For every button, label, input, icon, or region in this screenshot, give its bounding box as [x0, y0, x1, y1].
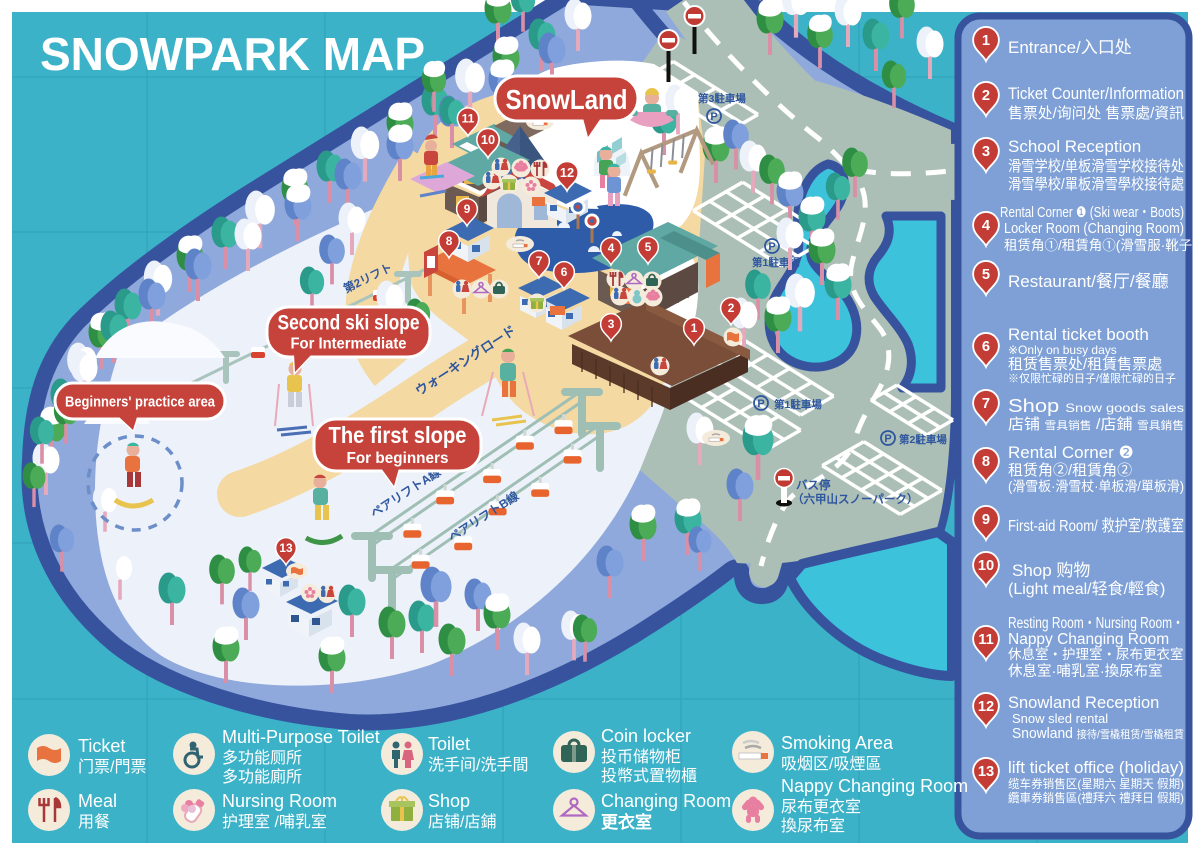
svg-text:Shop 购物: Shop 购物 — [1012, 561, 1090, 580]
svg-text:投幣式置物櫃: 投幣式置物櫃 — [601, 767, 697, 785]
svg-text:更衣室: 更衣室 — [601, 812, 652, 832]
svg-text:第3駐車場: 第3駐車場 — [698, 92, 746, 105]
svg-text:Entrance/入口处: Entrance/入口处 — [1008, 38, 1132, 57]
svg-text:換尿布室: 換尿布室 — [781, 817, 845, 835]
svg-text:3: 3 — [982, 144, 990, 160]
svg-text:Second ski slope: Second ski slope — [278, 312, 420, 335]
svg-text:第1駐車場: 第1駐車場 — [752, 256, 800, 269]
svg-text:9: 9 — [464, 202, 471, 216]
svg-text:第2駐車場: 第2駐車場 — [899, 433, 947, 446]
svg-text:SNOWPARK MAP: SNOWPARK MAP — [40, 28, 425, 80]
svg-text:尿布更衣室: 尿布更衣室 — [781, 798, 861, 816]
svg-text:纜車券銷售區(禮拜六 禮拜日 假期): 纜車券銷售區(禮拜六 禮拜日 假期) — [1008, 790, 1184, 805]
svg-text:店铺/店鋪: 店铺/店鋪 — [428, 813, 496, 831]
svg-text:1: 1 — [982, 33, 990, 49]
svg-text:Shop: Shop — [428, 791, 470, 811]
svg-text:P: P — [710, 111, 717, 123]
svg-text:2: 2 — [982, 88, 990, 104]
svg-text:Smoking Area: Smoking Area — [781, 733, 894, 753]
svg-text:SnowLand: SnowLand — [506, 84, 628, 115]
svg-text:多功能厕所: 多功能厕所 — [222, 749, 302, 767]
svg-text:7: 7 — [982, 396, 990, 412]
svg-text:11: 11 — [462, 112, 475, 126]
svg-text:休息室·哺乳室·換尿布室: 休息室·哺乳室·換尿布室 — [1008, 663, 1163, 680]
svg-text:(Light meal/轻食/輕食): (Light meal/轻食/輕食) — [1008, 580, 1165, 598]
svg-text:门票/門票: 门票/門票 — [78, 758, 146, 776]
svg-text:Changing Room: Changing Room — [601, 791, 731, 811]
svg-text:4: 4 — [982, 218, 991, 234]
svg-text:※Only on busy days: ※Only on busy days — [1008, 343, 1117, 357]
svg-text:售票处/询问处 售票處/資訊: 售票处/询问处 售票處/資訊 — [1008, 105, 1184, 122]
svg-text:Ticket Counter/Information: Ticket Counter/Information — [1008, 84, 1184, 103]
svg-text:多功能廁所: 多功能廁所 — [222, 767, 302, 786]
svg-text:The first slope: The first slope — [329, 422, 467, 448]
svg-text:Locker Room (Changing Room): Locker Room (Changing Room) — [1004, 221, 1184, 237]
svg-text:1: 1 — [691, 321, 698, 335]
svg-text:租赁角②/租賃角②: 租赁角②/租賃角② — [1008, 462, 1132, 479]
svg-text:Ticket: Ticket — [78, 736, 125, 756]
svg-text:Snow sled rental: Snow sled rental — [1012, 711, 1108, 726]
svg-text:洗手间/洗手間: 洗手间/洗手間 — [428, 756, 528, 774]
svg-text:2: 2 — [728, 301, 735, 315]
svg-text:滑雪学校/单板滑雪学校接待处: 滑雪学校/单板滑雪学校接待处 — [1008, 157, 1184, 175]
svg-text:Snowland Reception: Snowland Reception — [1008, 694, 1159, 712]
svg-text:バス停: バス停 — [796, 478, 831, 492]
svg-text:休息室・护理室・尿布更衣室: 休息室・护理室・尿布更衣室 — [1008, 646, 1184, 662]
svg-text:P: P — [884, 433, 891, 445]
svg-text:4: 4 — [608, 241, 615, 255]
svg-text:8: 8 — [446, 234, 453, 248]
svg-text:用餐: 用餐 — [78, 813, 110, 831]
svg-text:For beginners: For beginners — [347, 450, 449, 467]
svg-text:吸烟区/吸煙區: 吸烟区/吸煙區 — [781, 755, 881, 773]
svg-text:P: P — [757, 398, 764, 410]
svg-text:滑雪學校/單板滑雪學校接待處: 滑雪學校/單板滑雪學校接待處 — [1008, 175, 1184, 193]
svg-text:6: 6 — [982, 339, 990, 355]
svg-text:For Intermediate: For Intermediate — [291, 336, 407, 353]
svg-text:Beginners' practice area: Beginners' practice area — [65, 395, 216, 411]
svg-text:第1駐車場: 第1駐車場 — [774, 398, 822, 411]
svg-text:6: 6 — [561, 265, 568, 279]
svg-text:lift ticket office (holiday): lift ticket office (holiday) — [1008, 759, 1184, 777]
svg-text:9: 9 — [982, 512, 990, 528]
svg-text:Rental ticket booth: Rental ticket booth — [1008, 325, 1149, 344]
svg-text:※仅限忙碌的日子/僅限忙碌的日子: ※仅限忙碌的日子/僅限忙碌的日子 — [1008, 371, 1176, 385]
svg-text:Toilet: Toilet — [428, 734, 470, 754]
svg-text:Rental Corner ❶ (Ski wear・Boot: Rental Corner ❶ (Ski wear・Boots) — [1000, 205, 1184, 221]
svg-text:Nappy Changing Room: Nappy Changing Room — [1008, 631, 1169, 648]
svg-text:(滑雪板·滑雪杖·单板滑/單板滑): (滑雪板·滑雪杖·单板滑/單板滑) — [1008, 479, 1184, 494]
svg-text:5: 5 — [645, 240, 652, 254]
svg-text:Meal: Meal — [78, 791, 117, 811]
svg-text:School Reception: School Reception — [1008, 137, 1141, 156]
svg-text:12: 12 — [978, 699, 994, 715]
svg-text:（六甲山スノーパーク）: （六甲山スノーパーク） — [792, 492, 918, 506]
svg-text:Coin locker: Coin locker — [601, 726, 691, 746]
svg-text:10: 10 — [978, 558, 994, 574]
svg-text:11: 11 — [978, 632, 994, 648]
svg-text:Multi-Purpose Toilet: Multi-Purpose Toilet — [222, 727, 380, 747]
svg-text:12: 12 — [560, 165, 574, 180]
svg-text:租赁角①/租賃角①(滑雪服·靴子): 租赁角①/租賃角①(滑雪服·靴子) — [1004, 238, 1197, 253]
svg-text:8: 8 — [982, 454, 990, 470]
svg-text:投币储物柜: 投币储物柜 — [601, 748, 681, 766]
svg-text:Nappy Changing Room: Nappy Changing Room — [781, 776, 968, 796]
svg-text:3: 3 — [608, 317, 615, 331]
svg-text:10: 10 — [481, 132, 495, 147]
svg-text:Rental Corner ❷: Rental Corner ❷ — [1008, 443, 1134, 462]
svg-text:13: 13 — [978, 764, 994, 780]
svg-text:First-aid Room/ 救护室/救護室: First-aid Room/ 救护室/救護室 — [1008, 517, 1184, 535]
svg-text:护理室 /哺乳室: 护理室 /哺乳室 — [222, 813, 327, 831]
svg-text:Resting Room・Nursing Room・: Resting Room・Nursing Room・ — [1008, 615, 1184, 632]
svg-text:缆车券销售区(星期六 星期天 假期): 缆车券销售区(星期六 星期天 假期) — [1008, 776, 1184, 791]
svg-text:Restaurant/餐厅/餐廳: Restaurant/餐厅/餐廳 — [1008, 272, 1169, 291]
svg-text:7: 7 — [536, 254, 543, 268]
svg-text:13: 13 — [279, 541, 293, 555]
svg-text:5: 5 — [982, 267, 990, 283]
svg-text:Nursing Room: Nursing Room — [222, 791, 337, 811]
svg-text:租赁售票处/租賃售票處: 租赁售票处/租賃售票處 — [1008, 356, 1162, 373]
svg-text:P: P — [768, 241, 775, 253]
